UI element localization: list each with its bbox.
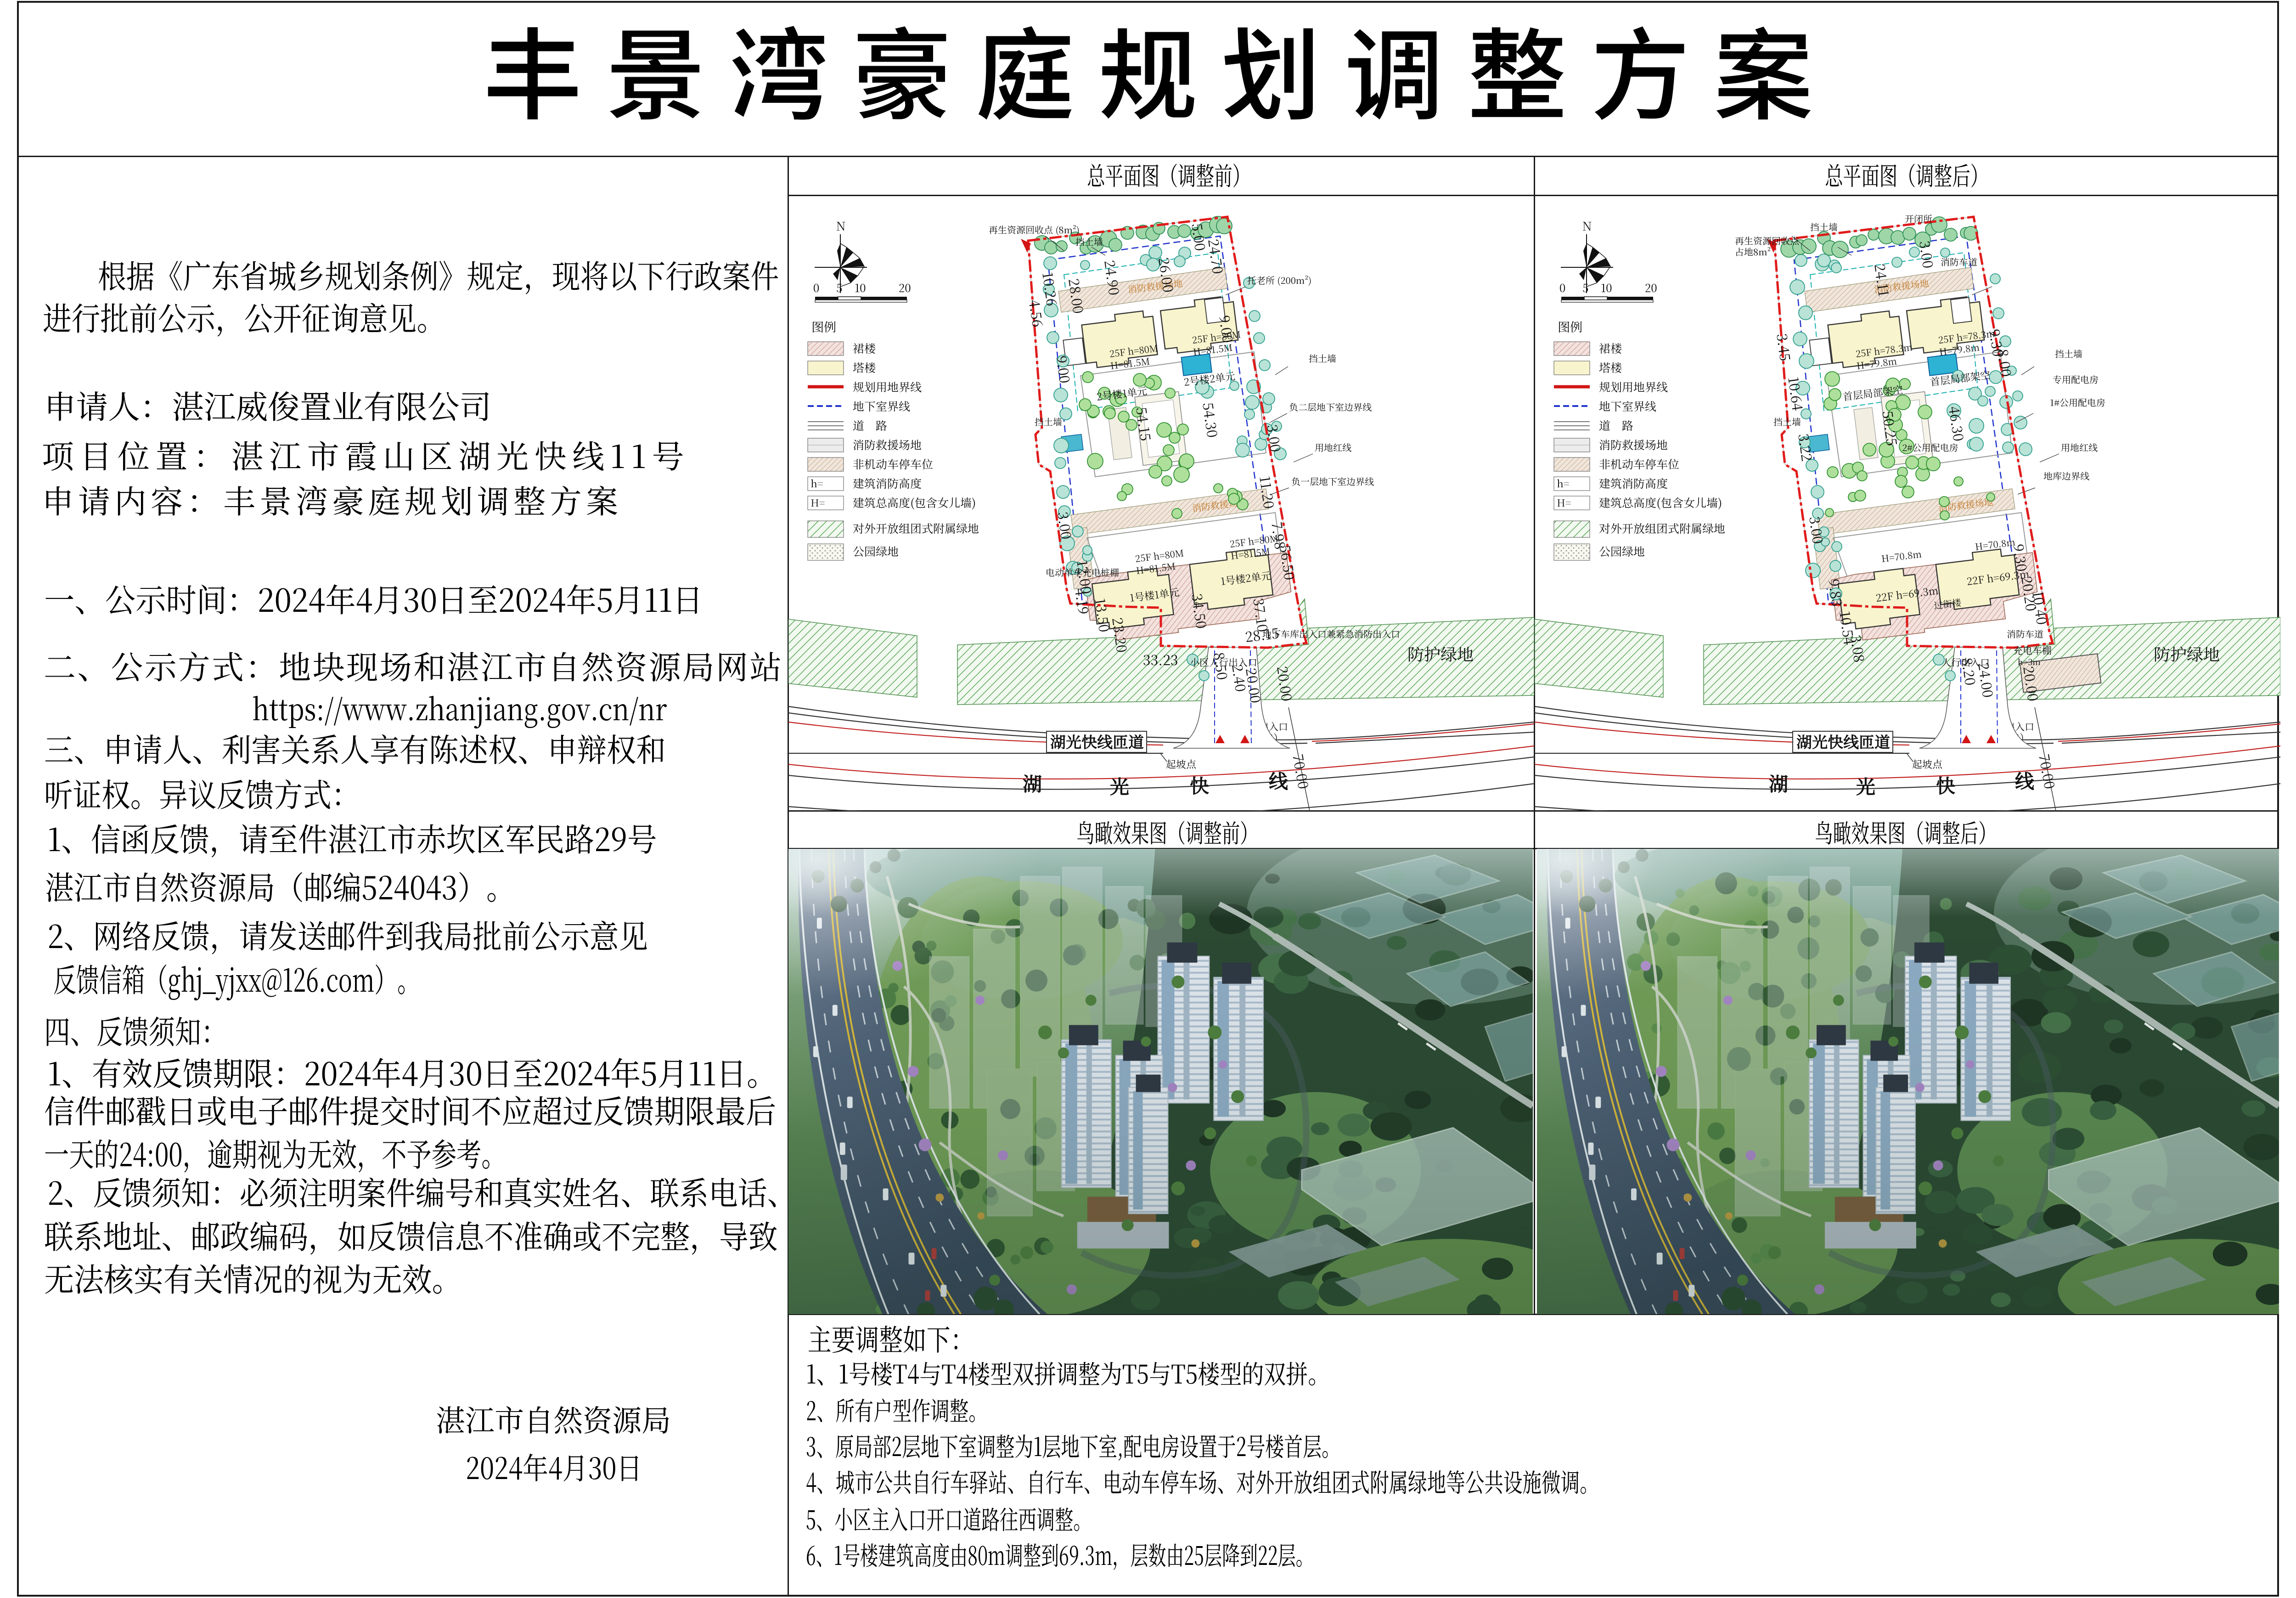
svg-text:再生资源回收点 (8m²): 再生资源回收点 (8m²) — [989, 223, 1080, 236]
svg-text:3.00: 3.00 — [1053, 510, 1077, 540]
svg-text:挡土墙: 挡土墙 — [1773, 415, 1801, 428]
svg-text:起坡点: 起坡点 — [1912, 757, 1942, 771]
svg-text:对外开放组团式附属绿地: 对外开放组团式附属绿地 — [853, 520, 979, 536]
svg-text:挡土墙: 挡土墙 — [1810, 220, 1838, 233]
svg-text:用地红线: 用地红线 — [2061, 440, 2098, 454]
svg-text:地下车库出入口兼紧急消防出入口: 地下车库出入口兼紧急消防出入口 — [1262, 627, 1400, 640]
svg-text:公园绿地: 公园绿地 — [1599, 543, 1645, 559]
svg-text:3.00: 3.00 — [1263, 423, 1287, 453]
svg-text:图例: 图例 — [1558, 317, 1582, 335]
svg-text:负二层地下室边界线: 负二层地下室边界线 — [1289, 400, 1372, 413]
svg-text:防护绿地: 防护绿地 — [1407, 642, 1474, 666]
svg-text:湖光快线匝道: 湖光快线匝道 — [1796, 730, 1890, 752]
svg-text:0: 0 — [1559, 279, 1565, 295]
svg-text:占地8m²: 占地8m² — [1735, 245, 1771, 258]
svg-text:专用配电房: 专用配电房 — [2053, 373, 2099, 386]
svg-text:5: 5 — [1582, 279, 1588, 295]
svg-text:33.23: 33.23 — [1143, 649, 1178, 669]
svg-text:70.00: 70.00 — [1289, 752, 1315, 791]
svg-text:非机动车停车位: 非机动车停车位 — [853, 456, 933, 472]
svg-text:开闭所: 开闭所 — [1905, 212, 1932, 225]
svg-text:消防车道: 消防车道 — [2007, 627, 2043, 640]
svg-text:10: 10 — [855, 279, 866, 295]
svg-text:2#公用配电房: 2#公用配电房 — [1902, 440, 1958, 454]
svg-text:快: 快 — [1190, 771, 1210, 799]
svg-text:起坡点: 起坡点 — [1166, 757, 1196, 771]
svg-text:3.22: 3.22 — [1794, 432, 1818, 463]
svg-text:70.00: 70.00 — [2035, 752, 2061, 791]
svg-text:挡土墙: 挡土墙 — [1075, 235, 1103, 248]
svg-text:道 路: 道 路 — [853, 417, 887, 434]
svg-text:消防救援场地: 消防救援场地 — [853, 436, 922, 453]
svg-text:充电车棚: 充电车棚 — [2013, 644, 2052, 657]
svg-text:规划用地界线: 规划用地界线 — [1599, 378, 1668, 395]
svg-text:h=: h= — [1557, 476, 1569, 491]
svg-text:道 路: 道 路 — [1599, 417, 1633, 434]
svg-text:建筑总高度(包含女儿墙): 建筑总高度(包含女儿墙) — [1599, 494, 1722, 511]
svg-text:建筑总高度(包含女儿墙): 建筑总高度(包含女儿墙) — [853, 494, 976, 511]
svg-text:N: N — [1582, 217, 1592, 234]
svg-text:h=: h= — [810, 476, 823, 491]
svg-text:0: 0 — [813, 279, 819, 295]
svg-text:5: 5 — [836, 279, 842, 295]
svg-text:公园绿地: 公园绿地 — [853, 543, 899, 559]
svg-text:地库边界线: 地库边界线 — [2043, 469, 2089, 482]
svg-text:挡土墙: 挡土墙 — [1035, 415, 1062, 428]
svg-text:9.83: 9.83 — [1824, 577, 1848, 608]
svg-text:线: 线 — [1269, 767, 1289, 794]
svg-text:裙楼: 裙楼 — [1599, 340, 1622, 356]
svg-text:1#公用配电房: 1#公用配电房 — [2050, 395, 2105, 409]
svg-text:建筑消防高度: 建筑消防高度 — [853, 475, 922, 491]
svg-text:消防车道: 消防车道 — [1941, 255, 1977, 268]
svg-text:光: 光 — [1110, 772, 1129, 800]
svg-text:规划用地界线: 规划用地界线 — [853, 378, 922, 395]
svg-text:9.00: 9.00 — [1052, 354, 1076, 384]
svg-text:20: 20 — [899, 279, 911, 295]
svg-text:地下室界线: 地下室界线 — [853, 398, 910, 414]
svg-text:挡土墙: 挡土墙 — [1309, 351, 1336, 365]
svg-text:防护绿地: 防护绿地 — [2154, 642, 2220, 666]
svg-text:小区人行出入口: 小区人行出入口 — [1190, 655, 1257, 669]
svg-text:电动单车充电桩棚: 电动单车充电桩棚 — [1046, 565, 1119, 579]
svg-text:快: 快 — [1936, 771, 1956, 799]
svg-text:湖: 湖 — [1769, 769, 1788, 797]
svg-text:3.00: 3.00 — [1805, 515, 1829, 545]
svg-text:托老所 (200m²): 托老所 (200m²) — [1247, 273, 1311, 287]
svg-text:H=: H= — [1557, 496, 1571, 510]
svg-text:建筑消防高度: 建筑消防高度 — [1599, 475, 1668, 491]
svg-text:塔楼: 塔楼 — [853, 359, 876, 376]
svg-text:塔楼: 塔楼 — [1599, 359, 1622, 376]
svg-text:光: 光 — [1856, 772, 1875, 800]
svg-text:地下室界线: 地下室界线 — [1599, 398, 1656, 414]
svg-text:消防救援场地: 消防救援场地 — [1599, 436, 1668, 453]
svg-text:20: 20 — [1645, 279, 1657, 295]
svg-text:非机动车停车位: 非机动车停车位 — [1599, 456, 1679, 472]
svg-text:N: N — [836, 217, 846, 234]
svg-text:H=: H= — [810, 496, 825, 510]
svg-text:3.45: 3.45 — [1773, 332, 1796, 362]
svg-text:图例: 图例 — [811, 317, 836, 335]
svg-text:用地红线: 用地红线 — [1315, 440, 1351, 454]
svg-text:10: 10 — [1601, 279, 1612, 295]
svg-text:湖: 湖 — [1023, 769, 1042, 797]
svg-text:湖光快线匝道: 湖光快线匝道 — [1050, 730, 1144, 752]
svg-text:对外开放组团式附属绿地: 对外开放组团式附属绿地 — [1599, 520, 1725, 536]
svg-text:挡土墙: 挡土墙 — [2055, 347, 2082, 360]
svg-text:8.00: 8.00 — [1993, 348, 2017, 378]
svg-text:3.00: 3.00 — [1915, 239, 1939, 269]
svg-text:裙楼: 裙楼 — [853, 340, 876, 356]
svg-text:3.08: 3.08 — [1846, 633, 1870, 664]
svg-text:负一层地下室边界线: 负一层地下室边界线 — [1291, 474, 1374, 488]
svg-text:人行出入口: 人行出入口 — [1941, 655, 1990, 669]
svg-text:线: 线 — [2015, 767, 2035, 794]
